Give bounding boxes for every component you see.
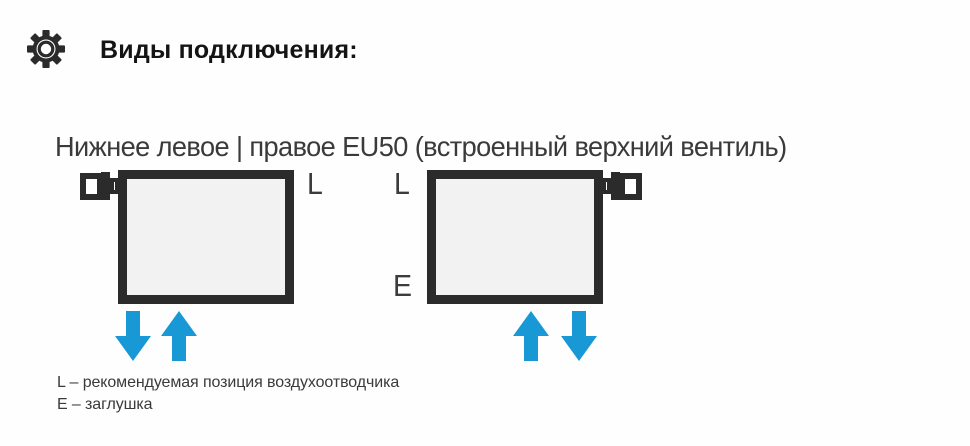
gear-icon — [26, 29, 66, 69]
valve-stem-left — [101, 172, 110, 200]
air-vent-label-right-diagram: L — [394, 169, 410, 199]
valve-connector-left — [110, 178, 119, 194]
page-title: Виды подключения: — [100, 36, 358, 65]
connection-types-diagram: Виды подключения: Нижнее левое | правое … — [0, 0, 970, 446]
legend-air-vent: L – рекомендуемая позиция воздухоотводчи… — [57, 372, 399, 394]
plug-label-right-diagram: E — [393, 271, 412, 301]
radiator-right-diagram — [427, 170, 603, 304]
valve-body-right — [619, 173, 642, 200]
valve-connector-right — [602, 178, 611, 194]
legend-plug: E – заглушка — [57, 394, 399, 416]
connection-subtitle: Нижнее левое | правое EU50 (встроенный в… — [55, 131, 787, 163]
valve-body-left — [80, 173, 103, 200]
radiator-left-diagram — [118, 170, 294, 304]
arrow-up-icon — [159, 311, 199, 361]
arrow-up-icon — [511, 311, 551, 361]
arrow-down-icon — [113, 311, 153, 361]
air-vent-label-left-diagram: L — [307, 169, 323, 199]
legend: L – рекомендуемая позиция воздухоотводчи… — [57, 372, 399, 416]
arrow-down-icon — [559, 311, 599, 361]
